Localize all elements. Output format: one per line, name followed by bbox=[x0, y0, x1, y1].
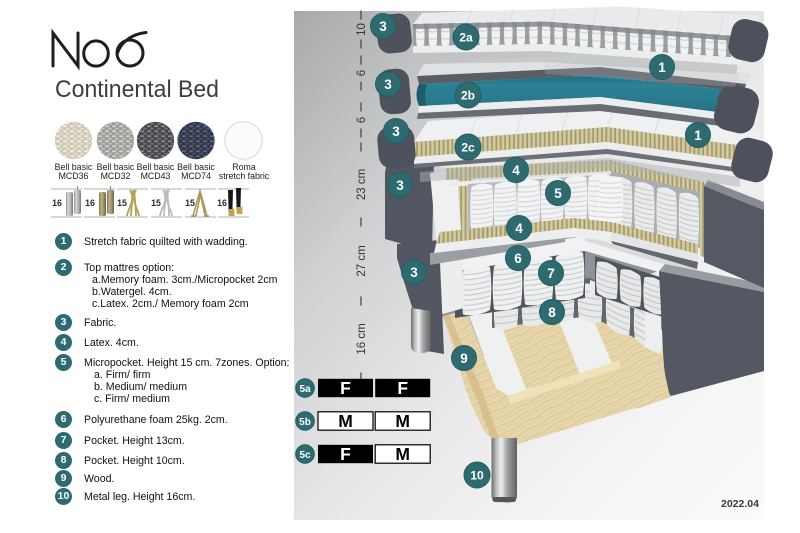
svg-text:2a: 2a bbox=[459, 30, 473, 44]
svg-text:3: 3 bbox=[379, 19, 387, 34]
svg-text:4: 4 bbox=[512, 163, 520, 178]
svg-text:6: 6 bbox=[356, 117, 368, 123]
svg-text:5c: 5c bbox=[299, 450, 311, 461]
svg-text:10: 10 bbox=[356, 23, 368, 36]
svg-text:6: 6 bbox=[356, 70, 368, 76]
svg-text:27 cm: 27 cm bbox=[356, 245, 368, 276]
svg-text:8: 8 bbox=[548, 305, 556, 320]
svg-text:F: F bbox=[340, 378, 351, 398]
svg-text:7: 7 bbox=[547, 266, 555, 281]
svg-text:M: M bbox=[338, 411, 353, 431]
svg-text:M: M bbox=[395, 411, 410, 431]
svg-text:3: 3 bbox=[396, 178, 404, 193]
svg-text:1: 1 bbox=[694, 128, 702, 143]
svg-text:1: 1 bbox=[658, 60, 666, 75]
svg-text:3: 3 bbox=[410, 265, 418, 280]
svg-text:4: 4 bbox=[515, 221, 523, 236]
svg-text:2b: 2b bbox=[461, 88, 475, 102]
svg-text:23 cm: 23 cm bbox=[356, 169, 368, 200]
svg-text:2c: 2c bbox=[461, 140, 475, 154]
svg-text:5b: 5b bbox=[299, 417, 311, 428]
svg-text:3: 3 bbox=[392, 124, 400, 139]
svg-text:16 cm: 16 cm bbox=[356, 323, 368, 354]
svg-text:F: F bbox=[340, 444, 351, 464]
svg-text:5a: 5a bbox=[299, 384, 311, 395]
svg-text:F: F bbox=[397, 378, 408, 398]
svg-text:9: 9 bbox=[460, 351, 468, 366]
svg-text:5: 5 bbox=[554, 186, 562, 201]
svg-text:6: 6 bbox=[514, 251, 522, 266]
svg-text:M: M bbox=[395, 444, 410, 464]
svg-text:10: 10 bbox=[470, 468, 484, 482]
svg-text:2022.04: 2022.04 bbox=[721, 498, 759, 510]
svg-text:3: 3 bbox=[384, 77, 392, 92]
